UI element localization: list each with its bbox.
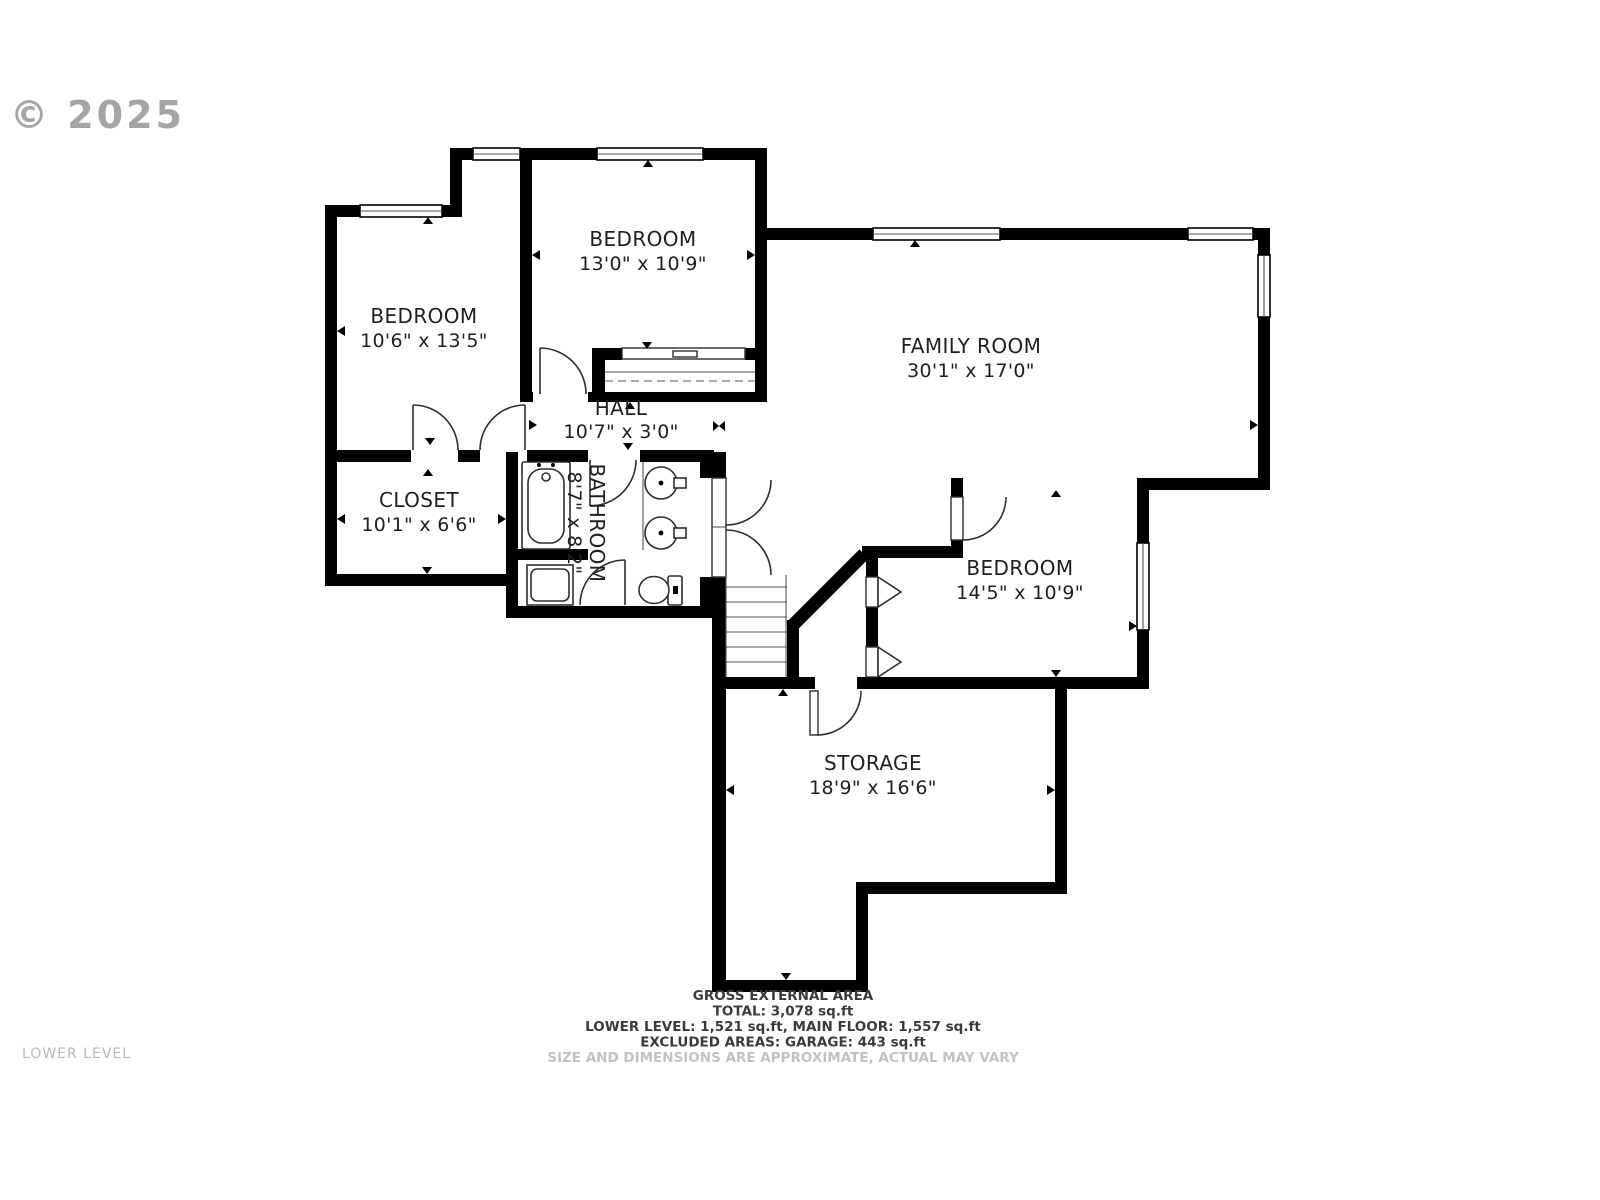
room-name: CLOSET — [379, 488, 459, 512]
room-dims: 8'7" x 8'2" — [563, 472, 585, 575]
room-name: STORAGE — [824, 751, 922, 775]
window-step — [473, 148, 520, 160]
walls — [325, 148, 1270, 992]
room-label-bedroom-top: BEDROOM 13'0" x 10'9" — [579, 227, 707, 275]
door-bedroom-right — [951, 497, 1006, 540]
room-label-bedroom-left: BEDROOM 10'6" x 13'5" — [360, 304, 488, 352]
room-label-storage: STORAGE 18'9" x 16'6" — [809, 751, 937, 799]
room-name: HALL — [595, 396, 648, 420]
room-name: FAMILY ROOM — [901, 334, 1042, 358]
opening-marker — [713, 421, 725, 431]
room-dims: 10'1" x 6'6" — [361, 514, 476, 536]
area-summary: GROSS EXTERNAL AREA TOTAL: 3,078 sq.ft L… — [547, 988, 1019, 1066]
dimension-markers — [337, 160, 1258, 980]
room-label-bedroom-right: BEDROOM 14'5" x 10'9" — [956, 556, 1084, 604]
windows — [360, 148, 1270, 630]
window-bedroom-top — [597, 148, 703, 160]
room-dims: 10'7" x 3'0" — [563, 421, 678, 443]
room-name: BEDROOM — [370, 304, 477, 328]
bathtub — [522, 462, 570, 549]
level-label: LOWER LEVEL — [22, 1046, 131, 1062]
window-bedroom-left — [360, 205, 442, 217]
room-name: BEDROOM — [589, 227, 696, 251]
sliding-closet-door — [622, 348, 745, 359]
door-bedroom-top — [540, 348, 586, 394]
floor-plan-canvas: © 2025 LOWER LEVEL — [0, 0, 1600, 1200]
disclaimer: SIZE AND DIMENSIONS ARE APPROXIMATE, ACT… — [547, 1050, 1019, 1066]
gross-area-title: GROSS EXTERNAL AREA — [693, 988, 874, 1004]
total-area: TOTAL: 3,078 sq.ft — [713, 1004, 854, 1020]
door-bedroom-left-2 — [480, 405, 525, 450]
window-family-1 — [873, 228, 1000, 240]
room-dims: 13'0" x 10'9" — [579, 253, 707, 275]
toilet — [639, 576, 682, 605]
room-label-hall: HALL 10'7" x 3'0" — [563, 396, 678, 443]
closet-rod-and-shelf — [605, 372, 755, 381]
room-label-bathroom: BATHROOM 8'7" x 8'2" — [563, 464, 609, 583]
stairs — [726, 575, 787, 677]
copyright-watermark: © 2025 — [10, 93, 185, 137]
window-family-east — [1258, 255, 1270, 317]
window-bedroom-right — [1137, 543, 1149, 630]
room-dims: 30'1" x 17'0" — [907, 360, 1035, 382]
double-doors-landing — [712, 478, 771, 577]
doors — [413, 348, 1006, 735]
vanity-sinks — [643, 462, 686, 550]
room-name: BEDROOM — [966, 556, 1073, 580]
door-bedroom-left-1 — [413, 405, 458, 450]
room-dims: 10'6" x 13'5" — [360, 330, 488, 352]
room-label-family-room: FAMILY ROOM 30'1" x 17'0" — [901, 334, 1042, 382]
door-storage — [810, 691, 861, 735]
room-dims: 18'9" x 16'6" — [809, 777, 937, 799]
level-areas: LOWER LEVEL: 1,521 sq.ft, MAIN FLOOR: 1,… — [585, 1019, 981, 1035]
room-name: BATHROOM — [585, 464, 609, 583]
room-label-closet: CLOSET 10'1" x 6'6" — [361, 488, 476, 536]
room-dims: 14'5" x 10'9" — [956, 582, 1084, 604]
excluded-areas: EXCLUDED AREAS: GARAGE: 443 sq.ft — [640, 1035, 926, 1051]
window-family-2 — [1188, 228, 1253, 240]
